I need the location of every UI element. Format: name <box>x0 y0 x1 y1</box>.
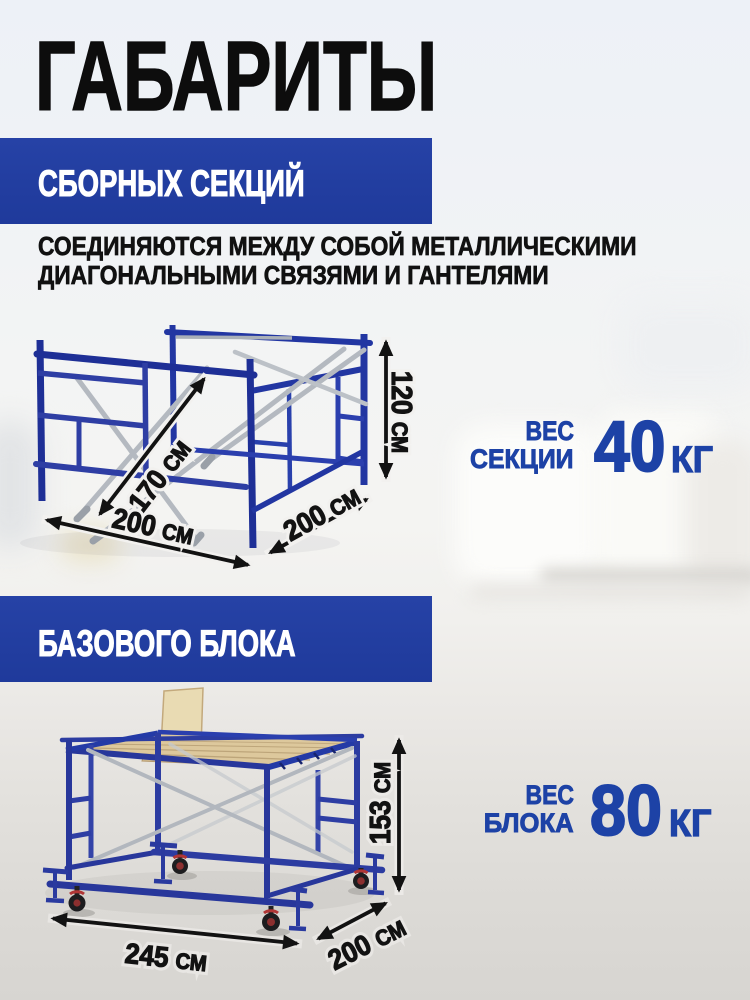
svg-text:200 СМ: 200 СМ <box>323 910 411 976</box>
svg-text:153 СМ: 153 СМ <box>364 762 396 844</box>
svg-text:245 СМ: 245 СМ <box>124 937 209 978</box>
svg-text:120 СМ: 120 СМ <box>386 371 418 453</box>
